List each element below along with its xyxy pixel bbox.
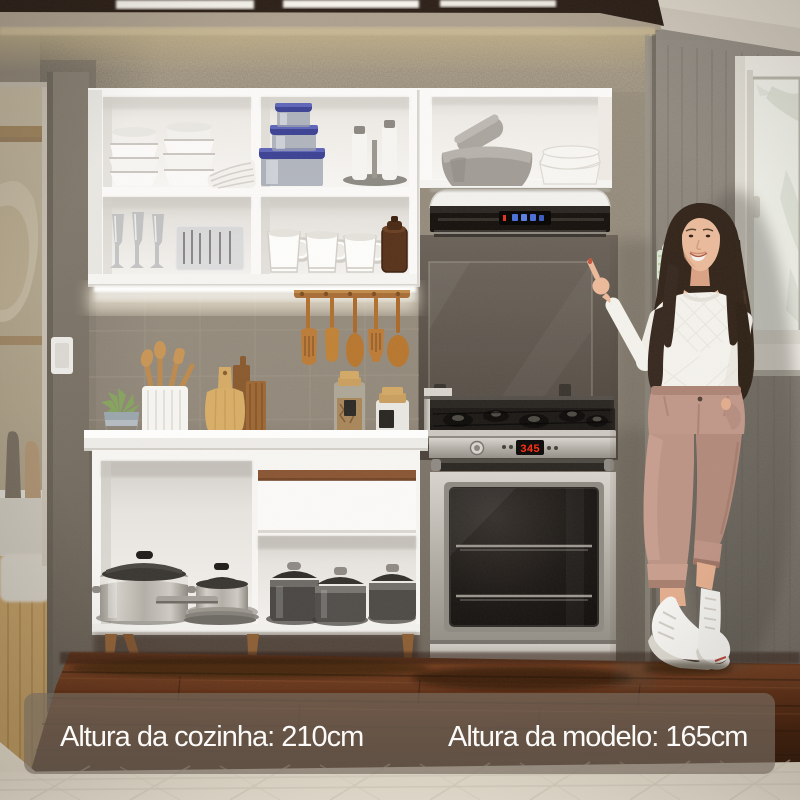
svg-text:Altura da modelo: 165cm: Altura da modelo: 165cm xyxy=(448,721,747,753)
svg-text:Altura da cozinha: 210cm: Altura da cozinha: 210cm xyxy=(60,721,363,753)
